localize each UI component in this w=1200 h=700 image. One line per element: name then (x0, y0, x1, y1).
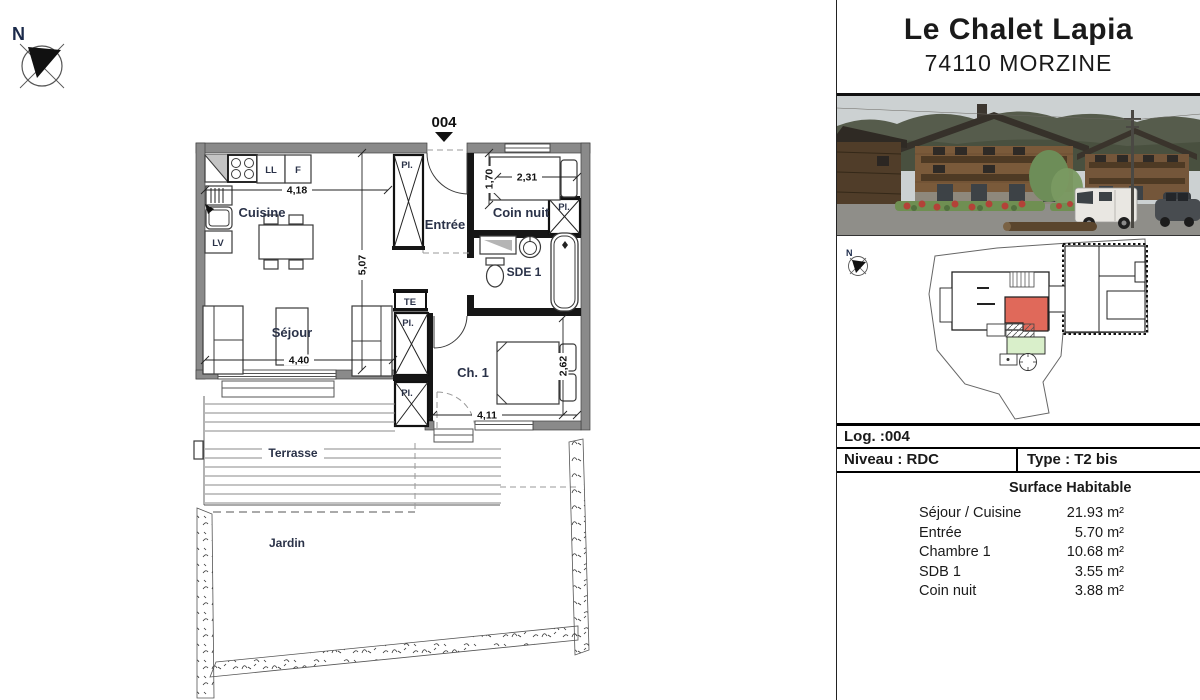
stove (228, 155, 257, 182)
surface-table: Surface Habitable Séjour / Cuisine 21.93… (837, 473, 1200, 602)
dining-table (259, 225, 313, 259)
room-label-entree: Entrée (425, 217, 465, 232)
surface-label: SDB 1 (919, 563, 961, 583)
chambre-window (475, 421, 533, 430)
level-cell: Niveau : RDC (837, 449, 1018, 471)
chambre-door-arc (434, 316, 467, 348)
terrace-deck-lower (205, 441, 501, 505)
sejour-sill (222, 381, 334, 397)
surface-row: Entrée 5.70 m² (837, 524, 1200, 544)
unit-terrace-hatch (1006, 324, 1034, 337)
dishwasher-label: LV (212, 238, 224, 249)
closet-label: Pl. (558, 202, 570, 213)
project-photo (837, 96, 1200, 236)
washing-machine-label: LL (265, 165, 277, 176)
room-label-jardin: Jardin (269, 536, 305, 550)
north-letter: N (12, 24, 25, 44)
chambre-terrace-door-arc (437, 392, 475, 430)
chair (289, 215, 303, 224)
room-label-chambre: Ch. 1 (457, 365, 489, 380)
closet-label: Pl. (401, 388, 413, 399)
surface-value: 3.88 m² (1075, 582, 1124, 602)
chair (264, 260, 278, 269)
closet-label: Pl. (401, 160, 413, 171)
dim-value: 4,18 (287, 185, 308, 197)
terrace: Terrasse (194, 396, 577, 510)
compass-needle (28, 47, 61, 78)
window (877, 156, 889, 166)
dim-value: 4,40 (289, 355, 310, 367)
room-label-sejour: Séjour (272, 325, 312, 340)
surface-row: SDB 1 3.55 m² (837, 563, 1200, 583)
unit-row: Log. :004 (837, 423, 1200, 449)
garden-hedge-bottom (210, 626, 578, 677)
double-bed (497, 342, 559, 404)
surface-label: Séjour / Cuisine (919, 504, 1021, 524)
surface-label: Chambre 1 (919, 543, 991, 563)
room-label-terrasse: Terrasse (268, 446, 317, 460)
dim-value: 2,62 (558, 356, 570, 377)
level-type-row: Niveau : RDC Type : T2 bis (837, 449, 1200, 473)
surface-row: Coin nuit 3.88 m² (837, 582, 1200, 602)
site-plan: N (837, 236, 1200, 423)
site-north-compass: N (846, 248, 868, 276)
surface-row: Chambre 1 10.68 m² (837, 543, 1200, 563)
stair-hatch (1010, 272, 1034, 287)
surface-label: Coin nuit (919, 582, 976, 602)
toilet-bowl (487, 265, 504, 287)
floor-plan: N 004 (0, 0, 836, 700)
chair (289, 260, 303, 269)
project-title: Le Chalet Lapia (837, 0, 1200, 47)
type-cell: Type : T2 bis (1018, 449, 1200, 471)
entry-door-arc (427, 153, 467, 194)
dim-value: 1,70 (484, 169, 496, 190)
title-panel: Le Chalet Lapia 74110 MORZINE (836, 0, 1200, 700)
surface-row: Séjour / Cuisine 21.93 m² (837, 504, 1200, 524)
room-label-coin-nuit: Coin nuit (493, 205, 550, 220)
surface-table-header: Surface Habitable (837, 480, 1200, 496)
terrace-deck-upper (205, 397, 395, 439)
dim-value: 2,31 (517, 172, 538, 184)
chambre-door-sill (434, 429, 473, 442)
dimension-chambre-width: 4,11 (429, 410, 581, 422)
site-plan-drawing: N (837, 236, 1200, 423)
unit-garden (1007, 337, 1045, 354)
terrace-step (194, 441, 203, 459)
north-compass: N (12, 24, 64, 88)
surface-value: 3.55 m² (1075, 563, 1124, 583)
room-label-sde: SDE 1 (507, 265, 542, 279)
room-label-cuisine: Cuisine (239, 205, 286, 220)
closet-label: Pl. (402, 318, 414, 329)
te-label: TE (404, 297, 416, 308)
garden-hedge-left (197, 508, 214, 698)
toilet-tank (486, 258, 504, 265)
plan-sheet: { "header": { "title": "Le Chalet Lapia"… (0, 0, 1200, 700)
fridge-label: F (295, 165, 301, 176)
north-letter: N (846, 248, 853, 258)
compass-needle (852, 260, 866, 273)
wood-log (1003, 222, 1097, 231)
surface-value: 5.70 m² (1075, 524, 1124, 544)
entry-arrow-icon (435, 132, 453, 142)
dim-value: 5,07 (357, 255, 369, 276)
garden-hedge-right (569, 439, 589, 655)
unit-number: 004 (431, 114, 457, 131)
chalet-left-foreground (837, 126, 907, 212)
surface-label: Entrée (919, 524, 962, 544)
surface-value: 21.93 m² (1067, 504, 1124, 524)
project-city: 74110 MORZINE (837, 50, 1200, 77)
title-block: Le Chalet Lapia 74110 MORZINE (837, 0, 1200, 96)
surface-value: 10.68 m² (1067, 543, 1124, 563)
unit-id: Log. :004 (844, 428, 910, 445)
building-east (1063, 244, 1147, 334)
bed-pillow (561, 160, 577, 197)
dim-value: 4,11 (477, 410, 497, 422)
unit-marker: 004 (431, 114, 457, 142)
chalet-photo-illustration (837, 96, 1200, 236)
entree-zone-boundary (423, 157, 470, 253)
